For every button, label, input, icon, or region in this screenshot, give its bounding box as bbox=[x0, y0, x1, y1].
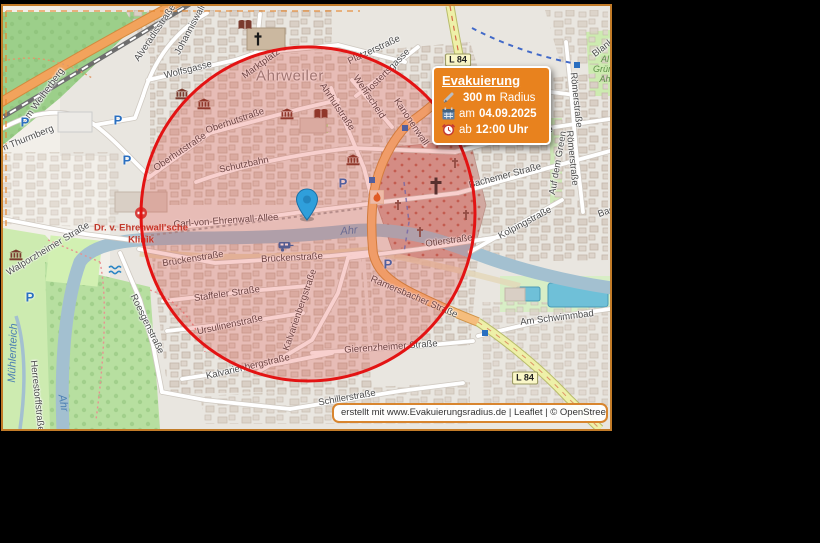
street-label: Kalvarienbergstraße bbox=[205, 352, 291, 382]
museum-icon bbox=[176, 89, 189, 100]
date-row: am 04.09.2025 bbox=[442, 107, 541, 120]
museum-icon bbox=[10, 250, 23, 261]
radius-suffix: Radius bbox=[500, 92, 536, 104]
street-label: Bac bbox=[596, 204, 612, 220]
green-label: Grün bbox=[593, 64, 612, 74]
parking-icon: P bbox=[21, 116, 30, 129]
parking-icon: P bbox=[384, 258, 393, 271]
street-label: Blank bbox=[590, 36, 612, 59]
street-label: Alveradisstraße bbox=[132, 4, 178, 63]
museum-icon bbox=[198, 99, 211, 110]
road-shield: L 84 bbox=[512, 372, 538, 385]
street-label: Brückenstraße bbox=[261, 251, 323, 265]
parking-icon: P bbox=[114, 114, 123, 127]
street-label: Kanonenwall bbox=[391, 96, 431, 147]
hospital-icon bbox=[135, 207, 148, 220]
street-label: Johanniswall bbox=[172, 4, 207, 57]
clinic-label: Klinik bbox=[128, 235, 154, 246]
street-label: Carl-von-Ehrenwall-Allee bbox=[173, 212, 279, 230]
road-shield: L 84 bbox=[445, 54, 471, 67]
museum-icon bbox=[347, 155, 360, 166]
street-label: Kalvarienbergstraße bbox=[281, 268, 319, 352]
water-label: Mühlenteich bbox=[6, 323, 20, 383]
town-label: Ahrweiler bbox=[256, 68, 324, 85]
parking-icon: P bbox=[339, 177, 348, 190]
street-label: Staffeler Straße bbox=[193, 284, 260, 304]
busstop-icon bbox=[369, 177, 375, 183]
museum-icon bbox=[281, 109, 294, 120]
street-label: Ursulinenstraße bbox=[196, 313, 264, 338]
attribution-bar[interactable]: erstellt mit www.Evakuierungsradius.de |… bbox=[332, 403, 608, 423]
street-label: Gierenzheimer Straße bbox=[344, 338, 438, 355]
weir-icon bbox=[108, 265, 122, 276]
calendar-icon bbox=[442, 107, 455, 120]
busstop-icon bbox=[482, 330, 488, 336]
date-prefix: am bbox=[459, 108, 475, 120]
street-label: Schutzbahn bbox=[218, 154, 269, 175]
time-prefix: ab bbox=[459, 124, 472, 136]
pencil-icon bbox=[442, 91, 455, 104]
street-label: Römerstraße bbox=[568, 72, 585, 128]
street-label: Plätzerstraße bbox=[346, 33, 402, 67]
screenshot-root: { "map": { "frame_border_color": "#c27b2… bbox=[0, 0, 820, 543]
book-icon bbox=[314, 109, 328, 119]
flame-icon bbox=[370, 190, 384, 204]
street-label: Brückenstraße bbox=[162, 249, 225, 270]
cross-icon bbox=[451, 158, 459, 168]
time-row: ab 12:00 Uhr bbox=[442, 123, 541, 136]
street-label: Marktplatz bbox=[240, 47, 282, 82]
street-label: Hostertsgasse bbox=[362, 47, 413, 98]
clinic-label: Dr. v. Ehrenwall'sche bbox=[94, 223, 188, 234]
time-value: 12:00 Uhr bbox=[476, 124, 528, 136]
street-label: Oberhutstraße bbox=[152, 130, 209, 173]
green-label: Ah bbox=[599, 74, 610, 84]
location-marker bbox=[295, 188, 319, 227]
radius-row: 300 m Radius bbox=[442, 91, 541, 104]
parking-icon: P bbox=[26, 291, 35, 304]
street-label: Herrestorffstraße bbox=[28, 360, 46, 431]
street-label: Otlerstraße bbox=[425, 232, 474, 250]
green-label: Al bbox=[601, 54, 609, 64]
cross-icon bbox=[394, 200, 402, 210]
street-label: Wolfsgasse bbox=[163, 59, 213, 82]
date-value: 04.09.2025 bbox=[479, 108, 537, 120]
crossbig-icon bbox=[430, 178, 443, 195]
street-label: Ahrhutstraße bbox=[317, 81, 357, 133]
water-label: Ahr bbox=[56, 394, 71, 413]
attribution-text[interactable]: erstellt mit www.Evakuierungsradius.de |… bbox=[341, 407, 608, 418]
street-label: Roesgenstraße bbox=[128, 292, 166, 355]
street-label: Oberhutstraße bbox=[204, 106, 265, 136]
parking-icon: P bbox=[123, 154, 132, 167]
church-icon bbox=[253, 33, 263, 46]
map-canvas[interactable]: AlveradisstraßeJohanniswallWolfsgasseAm … bbox=[1, 4, 612, 431]
street-label: Römerstraße bbox=[564, 130, 581, 186]
clock-icon bbox=[442, 123, 455, 136]
busstop-icon bbox=[402, 125, 408, 131]
radius-value: 300 m bbox=[463, 92, 496, 104]
cross-icon bbox=[416, 227, 424, 237]
book-icon bbox=[238, 20, 252, 30]
busstop-icon bbox=[574, 62, 580, 68]
evacuation-info-box: Evakuierung 300 m Radius am 04.0 bbox=[432, 66, 551, 145]
water-label: Ahr bbox=[340, 224, 358, 238]
street-label: Bachemer Straße bbox=[468, 161, 543, 191]
street-label: Wehrscheid bbox=[350, 73, 387, 121]
caravan-icon bbox=[279, 242, 294, 252]
cross-icon bbox=[462, 210, 470, 220]
street-label: Am Schwimmbad bbox=[520, 308, 595, 328]
info-box-title: Evakuierung bbox=[442, 73, 541, 88]
street-label: Ramersbacher Straße bbox=[369, 274, 459, 321]
street-label: Kolpingstraße bbox=[497, 204, 554, 241]
